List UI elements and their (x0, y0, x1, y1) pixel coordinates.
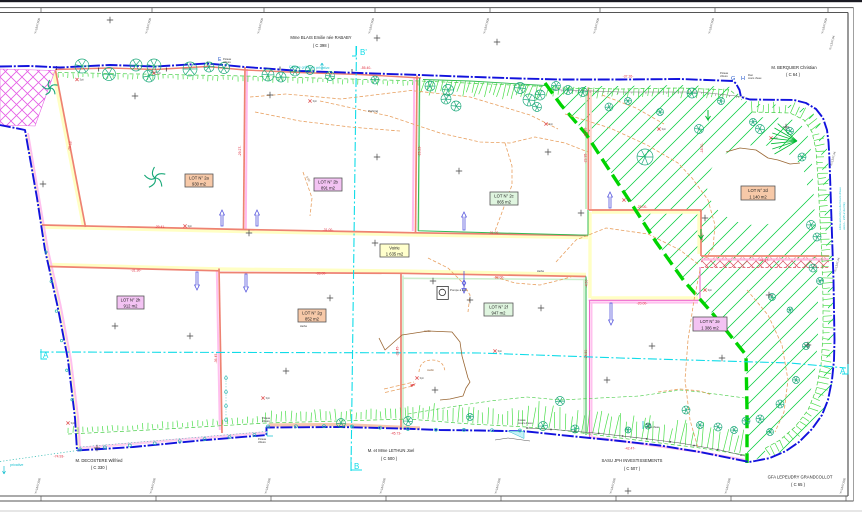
svg-text:-29.41-: -29.41- (155, 225, 166, 229)
svg-text:Spit: Spit (157, 72, 161, 75)
svg-text:-23.95-: -23.95- (584, 153, 588, 164)
svg-text:clôture: clôture (223, 60, 231, 64)
svg-text:M. et Mme LETHUN Joel: M. et Mme LETHUN Joel (368, 448, 415, 453)
svg-text:Jardin: Jardin (424, 329, 432, 333)
svg-text:SASU JPH INVESTISSEMENTS: SASU JPH INVESTISSEMENTS (602, 458, 663, 463)
svg-text:Mme BLAIS Emilie née RABABY: Mme BLAIS Emilie née RABABY (290, 35, 351, 40)
svg-text:B: B (354, 462, 359, 471)
svg-text:clôture: clôture (262, 419, 270, 423)
svg-text:865 m2: 865 m2 (497, 199, 512, 204)
svg-text:-31.30-: -31.30- (131, 269, 142, 273)
svg-text:LOT N° 2a: LOT N° 2a (189, 175, 209, 180)
svg-text:A: A (43, 351, 49, 360)
svg-text:H: H (741, 76, 745, 82)
svg-text:LOT N° 2h: LOT N° 2h (121, 297, 141, 302)
svg-text:Spit: Spit (266, 397, 270, 400)
svg-text:A: A (840, 367, 846, 376)
svg-text:-74.93-: -74.93- (54, 455, 65, 459)
svg-text:( C 398 ): ( C 398 ) (313, 43, 330, 48)
svg-text:-29.27-: -29.27- (238, 146, 242, 157)
svg-text:( C 500 ): ( C 500 ) (381, 456, 398, 461)
svg-text:-45.73-: -45.73- (391, 432, 402, 436)
svg-text:M. BERQUIER Christian: M. BERQUIER Christian (771, 65, 817, 70)
svg-text:( C 65 ): ( C 65 ) (791, 482, 806, 487)
svg-text:-33.00-: -33.00- (316, 272, 327, 276)
svg-text:Spit: Spit (549, 123, 553, 126)
svg-text:Herbe: Herbe (300, 324, 308, 328)
svg-text:-24.50-: -24.50- (584, 349, 588, 360)
svg-text:1 140 m2: 1 140 m2 (749, 194, 767, 199)
svg-text:Spit: Spit (627, 199, 631, 202)
svg-text:-28.45-: -28.45- (396, 346, 400, 357)
svg-text:-18.50-: -18.50- (700, 143, 704, 154)
svg-text:Spit: Spit (662, 128, 666, 131)
svg-text:LOT N° 2b: LOT N° 2b (318, 179, 338, 184)
svg-text:LOT N° 2f: LOT N° 2f (489, 304, 508, 309)
svg-text:GFA LEPEUDRY GRANDCOLLOT: GFA LEPEUDRY GRANDCOLLOT (768, 475, 833, 480)
svg-text:cours d'eau: cours d'eau (646, 425, 660, 429)
svg-text:-36.45-: -36.45- (214, 353, 218, 364)
svg-text:( C 64 ): ( C 64 ) (786, 72, 801, 77)
svg-text:Spit: Spit (80, 79, 84, 82)
svg-text:930 m2: 930 m2 (192, 181, 207, 186)
svg-text:-29.23-: -29.23- (418, 146, 422, 157)
svg-text:-44.87-: -44.87- (759, 259, 770, 263)
svg-text:cours d'eau: cours d'eau (748, 76, 762, 80)
svg-text:( C 507 ): ( C 507 ) (624, 466, 641, 471)
svg-text:852 m2: 852 m2 (305, 316, 320, 321)
svg-text:-4.50-: -4.50- (585, 279, 589, 288)
svg-text:-27.65-: -27.65- (584, 127, 588, 138)
svg-text:( C 330 ): ( C 330 ) (91, 465, 108, 470)
svg-text:1 635 m2: 1 635 m2 (386, 251, 404, 256)
svg-text:Spit: Spit (313, 100, 317, 103)
svg-text:Spit: Spit (188, 225, 192, 228)
svg-text:947 m2: 947 m2 (492, 310, 507, 315)
svg-text:Jardin: Jardin (427, 368, 435, 372)
svg-text:Voirie: Voirie (389, 245, 400, 250)
svg-text:G: G (731, 76, 735, 82)
svg-text:LOT N° 2c: LOT N° 2c (494, 193, 514, 198)
svg-text:1 386 m2: 1 386 m2 (701, 325, 719, 330)
svg-text:B': B' (360, 48, 367, 57)
svg-text:Spit: Spit (420, 377, 424, 380)
svg-text:Spit: Spit (708, 289, 712, 292)
svg-text:Pompe à eau: Pompe à eau (450, 288, 467, 292)
svg-text:Spit: Spit (71, 422, 75, 425)
svg-text:-20.00-: -20.00- (637, 302, 648, 306)
svg-text:-37.26-: -37.26- (623, 75, 634, 79)
svg-text:-55.40-: -55.40- (361, 66, 372, 70)
svg-text:-31.00-: -31.00- (323, 228, 334, 232)
svg-text:Parking: Parking (368, 109, 379, 113)
svg-text:LOT N° 2g: LOT N° 2g (302, 310, 322, 315)
svg-text:privative: privative (10, 463, 23, 467)
svg-text:-25.00-: -25.00- (637, 205, 648, 209)
svg-text:LOT N° 2e: LOT N° 2e (700, 319, 720, 324)
svg-text:clôture: clôture (720, 74, 728, 78)
svg-text:Herbe: Herbe (537, 269, 545, 273)
svg-text:clôture: clôture (258, 440, 266, 444)
svg-text:LOT N° 2d: LOT N° 2d (748, 188, 768, 193)
svg-text:vers L. 215-2 du CE): vers L. 215-2 du CE) (842, 202, 846, 230)
svg-text:cours d'eau: cours d'eau (518, 421, 533, 425)
svg-text:M. DECOSTERE Wilfried: M. DECOSTERE Wilfried (76, 458, 124, 463)
svg-text:-33.00-: -33.00- (494, 276, 505, 280)
svg-text:891 m2: 891 m2 (321, 185, 336, 190)
svg-text:Spit: Spit (498, 350, 502, 353)
svg-text:-42.47-: -42.47- (625, 447, 636, 451)
svg-text:912 m2: 912 m2 (124, 303, 139, 308)
svg-text:-31.00-: -31.00- (489, 231, 500, 235)
